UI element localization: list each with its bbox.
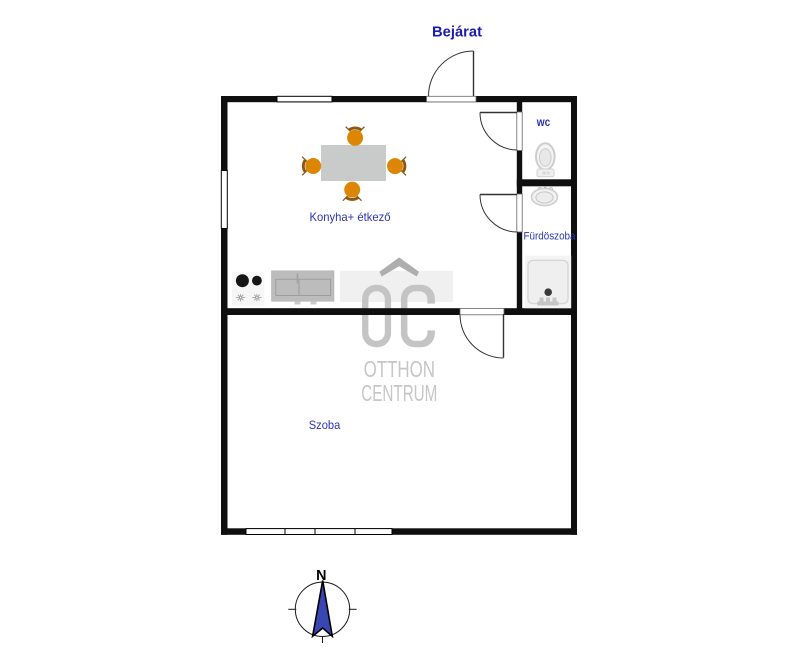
svg-text:OTTHON: OTTHON [364,358,435,383]
svg-text:N: N [316,568,326,584]
svg-text:Bejárat: Bejárat [432,24,482,41]
svg-text:Fürdöszoba: Fürdöszoba [524,231,577,243]
svg-text:CENTRUM: CENTRUM [361,381,437,406]
svg-text:wc: wc [536,115,551,129]
svg-text:Szoba: Szoba [309,418,341,432]
svg-text:Konyha+ étkező: Konyha+ étkező [310,210,391,224]
